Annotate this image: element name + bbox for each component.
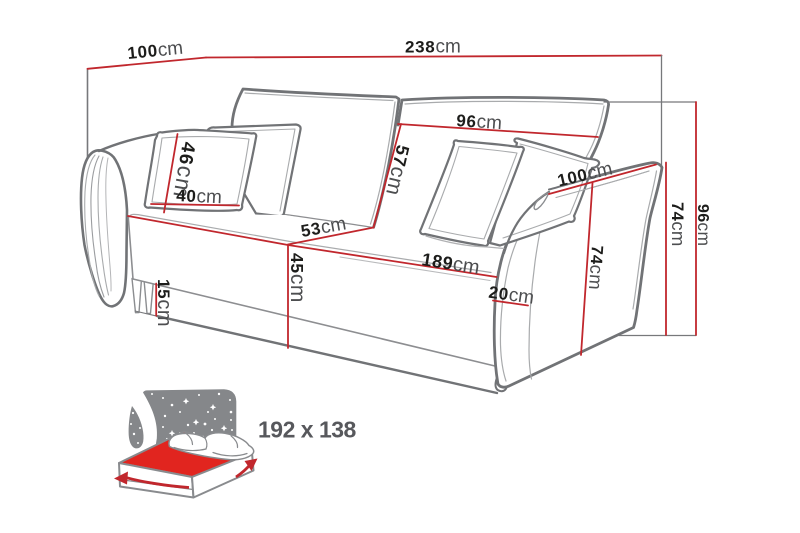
svg-text:74cm: 74cm: [585, 245, 609, 291]
svg-text:192 x 138: 192 x 138: [258, 417, 357, 443]
svg-text:45cm: 45cm: [286, 253, 309, 303]
svg-text:15cm: 15cm: [153, 279, 175, 327]
svg-text:96cm: 96cm: [694, 204, 714, 246]
svg-text:74cm: 74cm: [668, 202, 689, 247]
svg-text:238cm: 238cm: [405, 37, 461, 58]
svg-text:40cm: 40cm: [176, 185, 223, 208]
